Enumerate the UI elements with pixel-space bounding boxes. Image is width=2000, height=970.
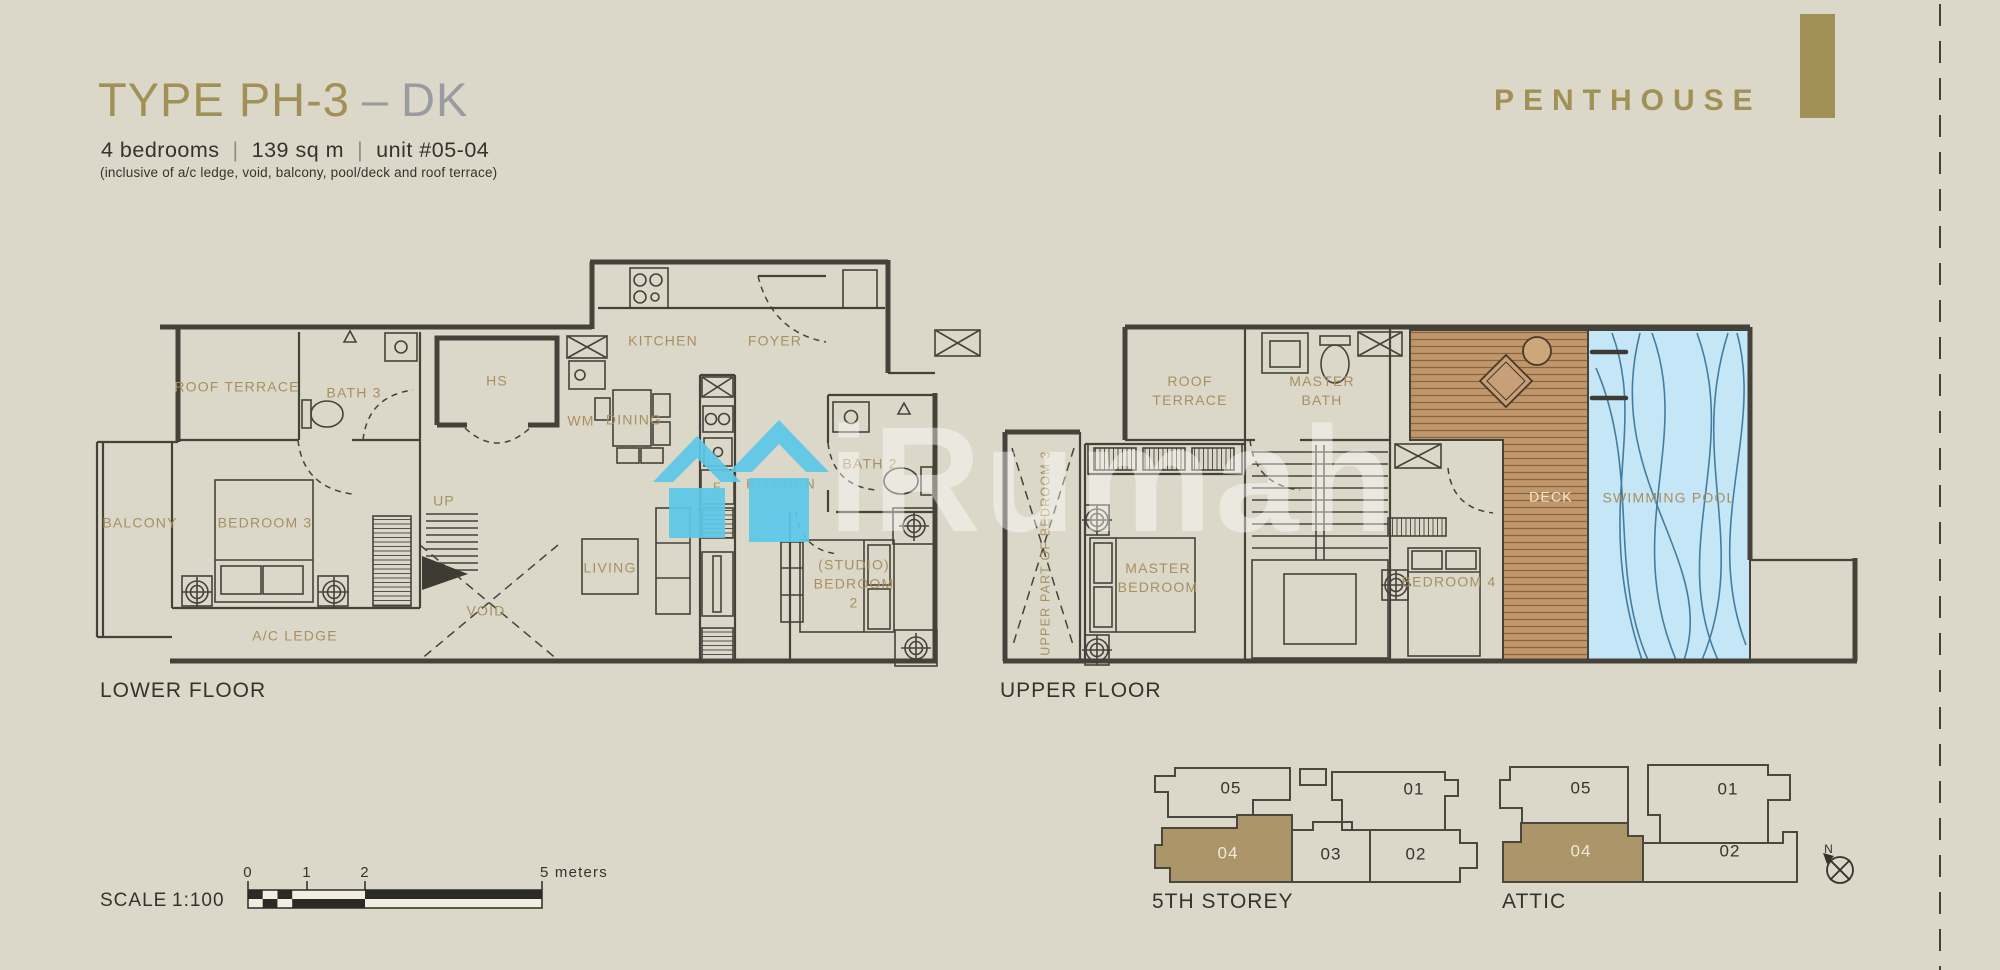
brand-bar: [1800, 14, 1835, 118]
compass-icon: [1823, 853, 1853, 883]
room-label-upper-part-bedroom3: UPPER PART OF BEDROOM 3: [1038, 450, 1055, 655]
scale-tick-end: 5 meters: [540, 863, 608, 883]
keyplan-5th-unit-03: 03: [1321, 844, 1342, 867]
room-label-master-bath: MASTER BATH: [1287, 372, 1357, 410]
unit-number: unit #05-04: [376, 138, 489, 162]
bedroom-count: 4 bedrooms: [101, 138, 220, 162]
room-label-bath2: BATH 2: [842, 455, 897, 474]
room-label-dining: DINING: [606, 411, 662, 430]
room-label-kitchen: KITCHEN: [628, 332, 698, 351]
page-title: TYPE PH-3–DK: [98, 76, 468, 123]
room-label-hs: HS: [486, 372, 508, 391]
room-label-wm: WM: [567, 412, 594, 431]
room-label-bedroom3: BEDROOM 3: [218, 514, 313, 533]
room-label-living: LIVING: [583, 559, 636, 578]
upper-floor-caption: UPPER FLOOR: [1000, 677, 1162, 705]
penthouse-banner: PENTHOUSE: [1494, 84, 1762, 118]
floorplan-sheet: TYPE PH-3–DK 4 bedrooms|139 sq m|unit #0…: [0, 0, 2000, 970]
keyplan-attic-unit-01: 01: [1718, 779, 1739, 802]
room-label-fridge: F: [713, 479, 721, 495]
room-label-master-bedroom: MASTER BEDROOM: [1114, 559, 1202, 597]
keyplan-attic-unit-02: 02: [1720, 841, 1741, 864]
keyplan-attic-caption: ATTIC: [1502, 888, 1566, 916]
room-label-roof-terrace-lower: ROOF TERRACE: [174, 378, 299, 397]
keyplan-5th-unit-01: 01: [1404, 779, 1425, 802]
room-label-kitchen-galley: KITCHEN: [746, 475, 816, 494]
unit-area: 139 sq m: [252, 138, 344, 162]
inclusions-note: (inclusive of a/c ledge, void, balcony, …: [100, 165, 497, 180]
keyplan-5th-caption: 5TH STOREY: [1152, 888, 1293, 916]
room-label-deck: DECK: [1529, 488, 1573, 507]
room-label-foyer: FOYER: [748, 332, 802, 351]
room-label-ac-ledge: A/C LEDGE: [252, 627, 338, 646]
keyplan-5th-storey: [1155, 768, 1477, 882]
room-label-studio-bedroom2: (STUDIO) BEDROOM 2: [808, 556, 900, 613]
scale-ratio: 1:100: [172, 888, 225, 914]
room-label-bedroom4: BEDROOM 4: [1402, 573, 1497, 592]
unit-summary: 4 bedrooms|139 sq m|unit #05-04: [101, 138, 489, 163]
keyplan-5th-unit-04-highlighted: 04: [1218, 843, 1239, 866]
room-label-roof-terrace-upper: ROOF TERRACE: [1149, 372, 1231, 410]
room-label-swimming-pool: SWIMMING POOL: [1602, 489, 1735, 508]
scale-tick-2: 2: [360, 863, 370, 883]
title-separator: –: [362, 73, 389, 126]
keyplan-5th-unit-05: 05: [1221, 778, 1242, 801]
scale-bar: [248, 881, 542, 908]
summary-separator: |: [357, 138, 363, 162]
keyplan-attic-unit-05: 05: [1571, 778, 1592, 801]
compass-north-label: N: [1824, 841, 1834, 857]
lower-floor-caption: LOWER FLOOR: [100, 677, 266, 705]
keyplan-5th-unit-02: 02: [1406, 844, 1427, 867]
room-label-up: UP: [433, 492, 455, 511]
title-main: TYPE PH-3: [98, 73, 350, 126]
room-label-void: VOID: [466, 602, 505, 621]
summary-separator: |: [233, 138, 239, 162]
scale-tick-0: 0: [243, 863, 253, 883]
room-label-balcony: BALCONY: [102, 514, 177, 533]
keyplan-attic-unit-04-highlighted: 04: [1571, 841, 1592, 864]
title-suffix: DK: [401, 73, 468, 126]
scale-tick-1: 1: [302, 863, 312, 883]
room-label-bath3: BATH 3: [326, 384, 381, 403]
scale-label: SCALE: [100, 888, 167, 914]
keyplan-attic: [1500, 765, 1797, 882]
